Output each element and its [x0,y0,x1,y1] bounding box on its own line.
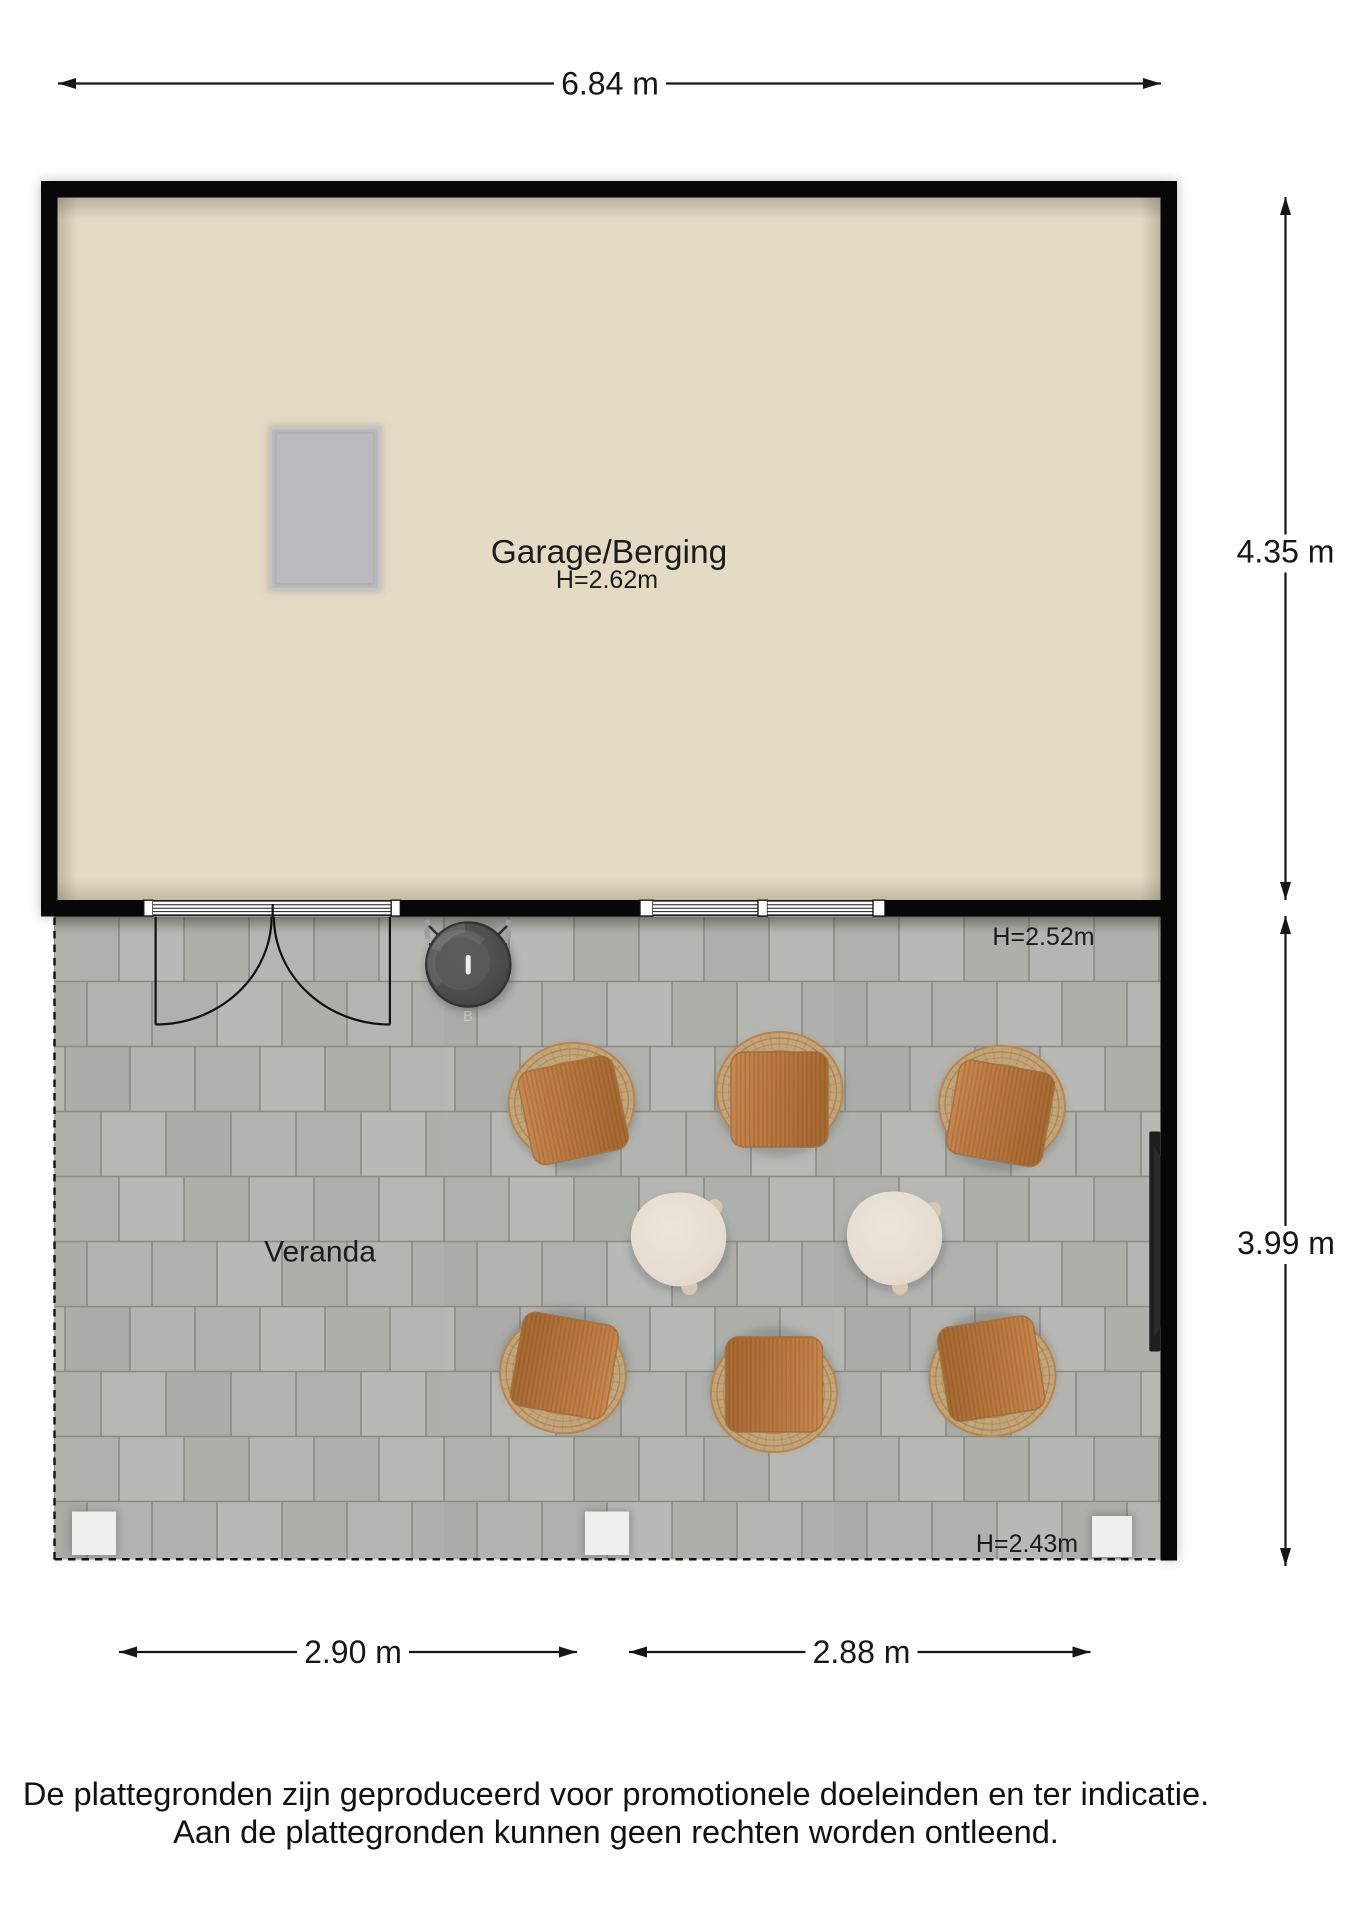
svg-text:Aan de plattegronden kunnen ge: Aan de plattegronden kunnen geen rechten… [173,1813,1059,1850]
svg-text:De plattegronden zijn geproduc: De plattegronden zijn geproduceerd voor … [23,1775,1209,1812]
svg-text:6.84 m: 6.84 m [561,66,659,102]
svg-text:H=2.43m: H=2.43m [976,1530,1078,1558]
svg-text:B: B [463,1008,473,1025]
svg-text:Veranda: Veranda [264,1236,376,1269]
svg-text:3.99 m: 3.99 m [1237,1225,1335,1261]
svg-text:4.35 m: 4.35 m [1237,534,1335,570]
svg-text:H=2.52m: H=2.52m [992,923,1094,951]
svg-text:2.88 m: 2.88 m [813,1634,911,1670]
svg-text:H=2.62m: H=2.62m [556,566,658,594]
svg-text:2.90 m: 2.90 m [304,1634,402,1670]
